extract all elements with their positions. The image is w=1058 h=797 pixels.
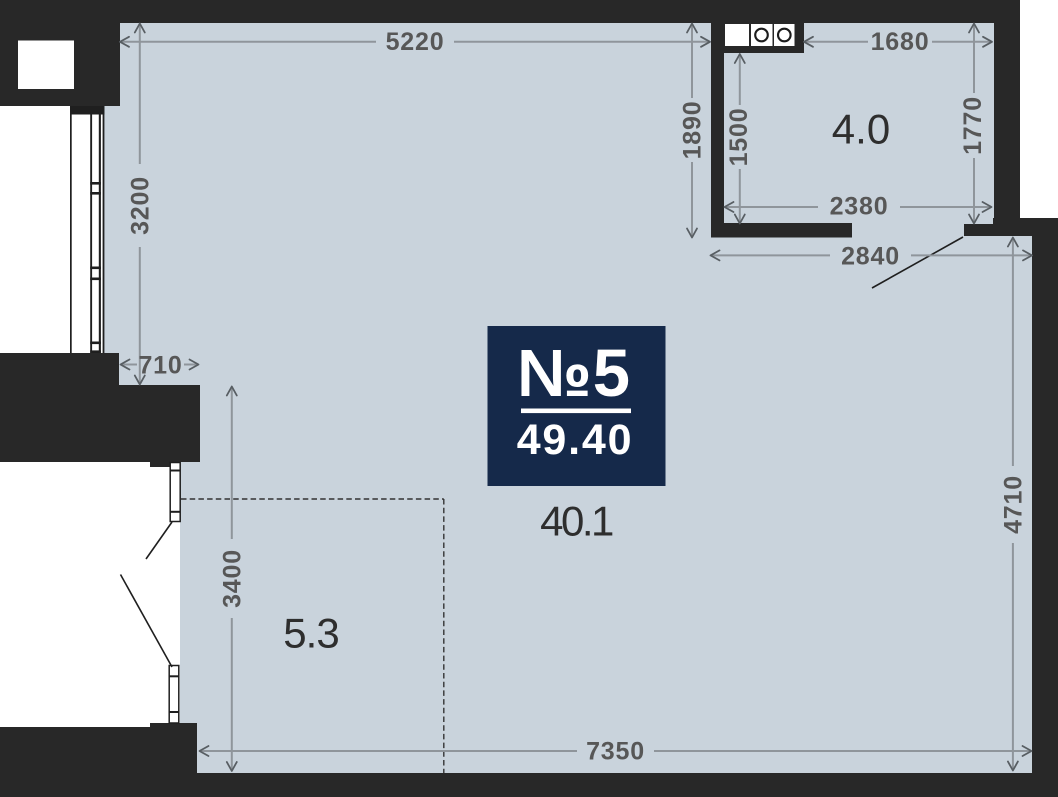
- svg-text:49.40: 49.40: [517, 416, 634, 464]
- svg-text:3400: 3400: [219, 549, 247, 608]
- svg-text:№5: №5: [517, 336, 631, 411]
- svg-text:4.0: 4.0: [832, 106, 890, 153]
- svg-text:7350: 7350: [586, 738, 645, 766]
- svg-text:5.3: 5.3: [283, 610, 338, 657]
- svg-text:1500: 1500: [725, 108, 753, 167]
- svg-text:710: 710: [138, 352, 182, 380]
- svg-text:1890: 1890: [679, 101, 707, 160]
- svg-text:2840: 2840: [841, 243, 900, 271]
- svg-text:40.1: 40.1: [540, 498, 613, 545]
- svg-text:4710: 4710: [1000, 475, 1028, 534]
- svg-text:3200: 3200: [127, 176, 155, 235]
- svg-text:5220: 5220: [386, 28, 445, 56]
- svg-text:1770: 1770: [959, 96, 987, 155]
- svg-text:1680: 1680: [871, 28, 930, 56]
- svg-text:2380: 2380: [830, 193, 889, 221]
